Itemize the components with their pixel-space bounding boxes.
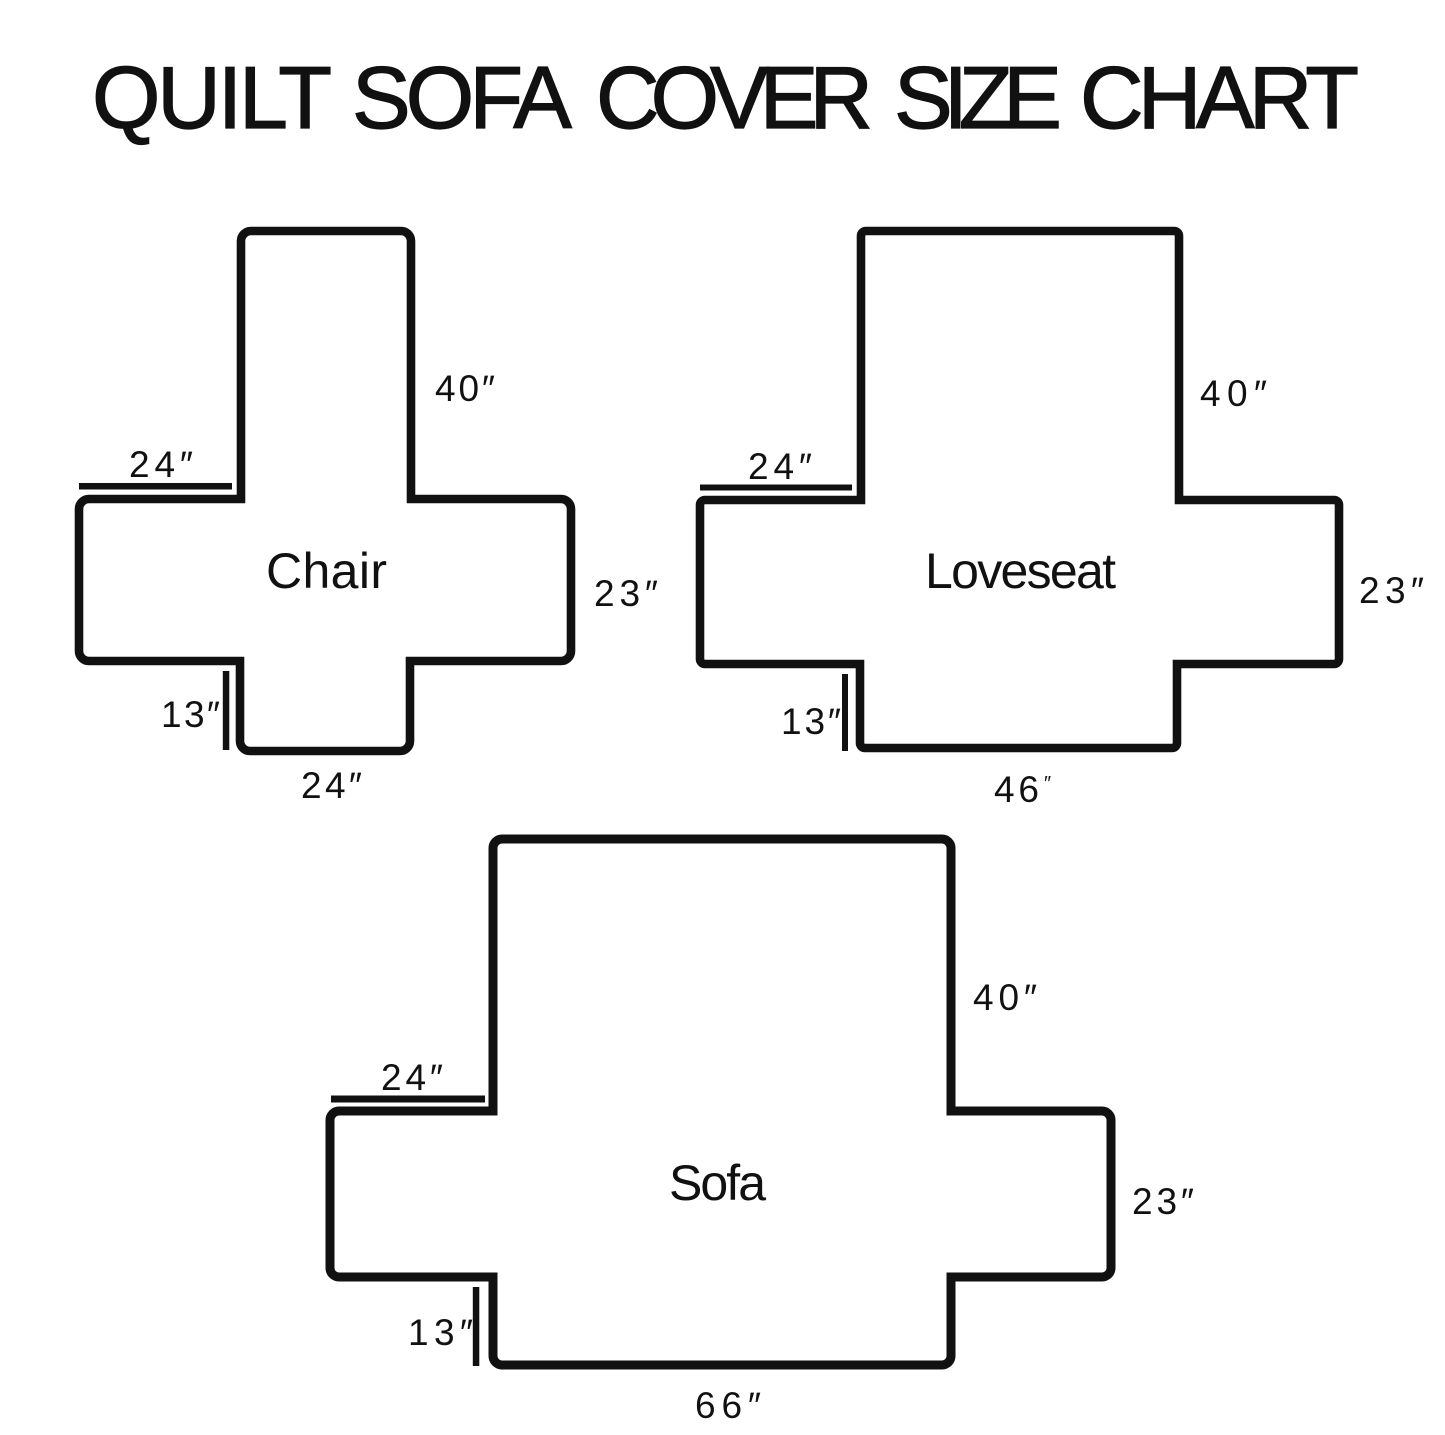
svg-text:23″: 23″	[1359, 570, 1424, 611]
svg-text:40″: 40″	[973, 977, 1037, 1018]
svg-text:Sofa: Sofa	[669, 1155, 766, 1211]
svg-text:23″: 23″	[594, 573, 658, 614]
svg-text:24″: 24″	[381, 1057, 443, 1098]
svg-text:40″: 40″	[435, 368, 495, 409]
svg-text:Chair: Chair	[266, 543, 387, 599]
svg-text:24″: 24″	[748, 446, 812, 487]
svg-text:23″: 23″	[1132, 1181, 1194, 1222]
svg-text:24″: 24″	[129, 444, 193, 485]
svg-text:13″: 13″	[408, 1312, 473, 1353]
svg-text:″: ″	[1044, 773, 1051, 795]
svg-text:QUILT: QUILT	[92, 48, 332, 147]
svg-text:13″: 13″	[781, 701, 841, 742]
svg-text:24″: 24″	[301, 765, 362, 806]
svg-text:Loveseat: Loveseat	[925, 543, 1116, 599]
svg-text:SIZE: SIZE	[894, 48, 1062, 147]
svg-text:40″: 40″	[1200, 373, 1267, 414]
svg-text:CHART: CHART	[1080, 48, 1359, 147]
svg-text:SOFA: SOFA	[352, 48, 572, 147]
svg-text:66″: 66″	[695, 1385, 761, 1426]
svg-text:COVER: COVER	[596, 48, 873, 147]
svg-text:13″: 13″	[161, 694, 220, 735]
